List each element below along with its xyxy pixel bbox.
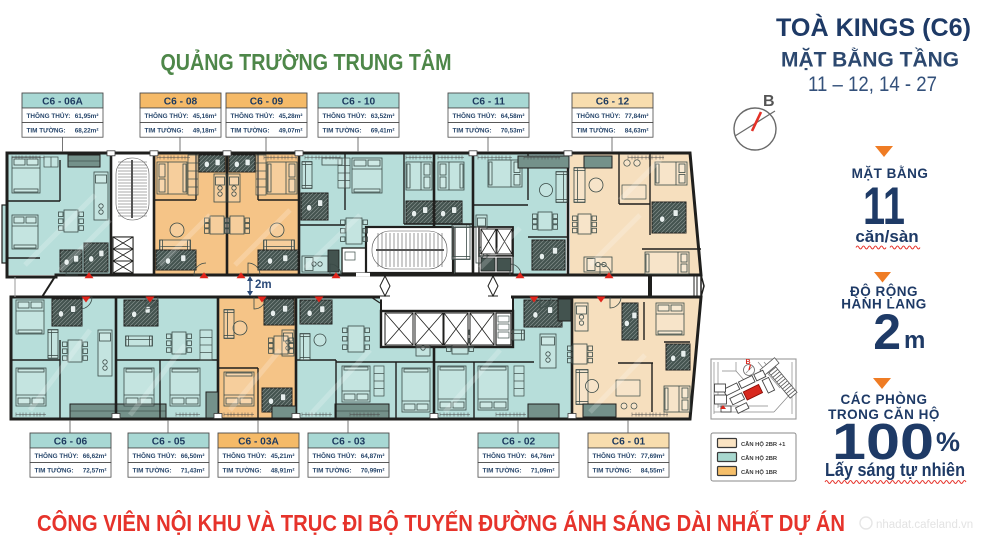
svg-text:m: m [904,327,925,354]
svg-text:THÔNG THỦY:: THÔNG THỦY: [145,111,189,120]
svg-text:C6 - 08: C6 - 08 [164,96,198,107]
svg-text:THÔNG THỦY:: THÔNG THỦY: [133,451,177,460]
svg-text:72,57m²: 72,57m² [83,468,107,475]
svg-text:11 – 12, 14 - 27: 11 – 12, 14 - 27 [808,73,937,96]
svg-text:66,62m²: 66,62m² [83,453,107,460]
svg-text:TIM TƯỜNG:: TIM TƯỜNG: [323,126,362,135]
svg-text:TOÀ KINGS (C6): TOÀ KINGS (C6) [776,13,971,42]
svg-text:64,58m²: 64,58m² [501,113,525,120]
svg-text:THÔNG THỦY:: THÔNG THỦY: [35,451,79,460]
svg-text:TIM TƯỜNG:: TIM TƯỜNG: [231,126,270,135]
svg-text:71,43m²: 71,43m² [181,468,205,475]
svg-text:84,63m²: 84,63m² [625,128,649,135]
svg-text:66,50m²: 66,50m² [181,453,205,460]
svg-text:48,91m²: 48,91m² [271,468,295,475]
svg-text:THÔNG THỦY:: THÔNG THỦY: [27,111,71,120]
svg-text:THÔNG THỦY:: THÔNG THỦY: [577,111,621,120]
svg-text:77,84m²: 77,84m² [625,113,649,120]
svg-text:C6 - 01: C6 - 01 [612,436,646,447]
svg-text:CÁC PHÒNG: CÁC PHÒNG [840,392,927,407]
svg-text:TIM TƯỜNG:: TIM TƯỜNG: [133,466,172,475]
svg-text:C6 - 03A: C6 - 03A [238,436,279,447]
svg-text:C6 - 02: C6 - 02 [502,436,536,447]
svg-text:CĂN HỘ 1BR: CĂN HỘ 1BR [741,468,778,476]
svg-text:C6 - 11: C6 - 11 [472,96,505,107]
svg-text:TIM TƯỜNG:: TIM TƯỜNG: [223,466,262,475]
svg-text:77,69m²: 77,69m² [641,453,665,460]
svg-text:nhadat.cafeland.vn: nhadat.cafeland.vn [876,519,973,531]
svg-text:64,76m²: 64,76m² [531,453,555,460]
svg-text:2m: 2m [255,279,272,291]
svg-text:TIM TƯỜNG:: TIM TƯỜNG: [35,466,74,475]
svg-text:QUẢNG TRƯỜNG TRUNG TÂM: QUẢNG TRƯỜNG TRUNG TÂM [161,47,452,75]
svg-text:45,28m²: 45,28m² [279,113,303,120]
svg-text:69,41m²: 69,41m² [371,128,395,135]
svg-text:64,87m²: 64,87m² [361,453,385,460]
svg-text:TIM TƯỜNG:: TIM TƯỜNG: [577,126,616,135]
svg-text:84,55m²: 84,55m² [641,468,665,475]
svg-text:THÔNG THỦY:: THÔNG THỦY: [593,451,637,460]
svg-text:B: B [763,93,775,110]
svg-text:C6 - 06A: C6 - 06A [42,96,83,107]
svg-text:49,18m²: 49,18m² [193,128,217,135]
svg-text:71,09m²: 71,09m² [531,468,555,475]
svg-text:C6 - 10: C6 - 10 [342,96,376,107]
svg-text:TIM TƯỜNG:: TIM TƯỜNG: [145,126,184,135]
svg-text:63,52m²: 63,52m² [371,113,395,120]
svg-text:%: % [936,427,960,457]
svg-text:45,16m²: 45,16m² [193,113,217,120]
svg-text:CĂN HỘ 2BR +1: CĂN HỘ 2BR +1 [741,440,786,448]
svg-text:49,07m²: 49,07m² [279,128,303,135]
svg-text:THÔNG THỦY:: THÔNG THỦY: [223,451,267,460]
svg-text:TIM TƯỜNG:: TIM TƯỜNG: [313,466,352,475]
svg-text:61,95m²: 61,95m² [75,113,99,120]
svg-text:45,21m²: 45,21m² [271,453,295,460]
svg-text:70,99m²: 70,99m² [361,468,385,475]
svg-text:căn/sàn: căn/sàn [855,227,918,246]
svg-text:THÔNG THỦY:: THÔNG THỦY: [453,111,497,120]
svg-text:TIM TƯỜNG:: TIM TƯỜNG: [27,126,66,135]
svg-text:C6 - 12: C6 - 12 [596,96,630,107]
svg-text:THÔNG THỦY:: THÔNG THỦY: [313,451,357,460]
svg-text:C6 - 05: C6 - 05 [152,436,186,447]
svg-text:CĂN HỘ 2BR: CĂN HỘ 2BR [741,454,778,462]
svg-text:THÔNG THỦY:: THÔNG THỦY: [323,111,367,120]
svg-text:TIM TƯỜNG:: TIM TƯỜNG: [453,126,492,135]
svg-text:C6 - 09: C6 - 09 [250,96,284,107]
svg-text:CÔNG VIÊN NỘI KHU VÀ TRỤC ĐI B: CÔNG VIÊN NỘI KHU VÀ TRỤC ĐI BỘ TUYẾN ĐƯ… [37,509,845,536]
svg-text:MẶT BẰNG TẦNG: MẶT BẰNG TẦNG [781,47,959,72]
svg-text:TIM TƯỜNG:: TIM TƯỜNG: [483,466,522,475]
svg-text:2: 2 [873,304,901,360]
svg-text:THÔNG THỦY:: THÔNG THỦY: [231,111,275,120]
svg-text:C6 - 03: C6 - 03 [332,436,366,447]
svg-text:THÔNG THỦY:: THÔNG THỦY: [483,451,527,460]
svg-text:C6 - 06: C6 - 06 [54,436,88,447]
svg-text:70,53m²: 70,53m² [501,128,525,135]
svg-text:B: B [746,359,751,366]
svg-text:TIM TƯỜNG:: TIM TƯỜNG: [593,466,632,475]
svg-text:Lấy sáng tự nhiên: Lấy sáng tự nhiên [825,459,965,480]
svg-text:68,22m²: 68,22m² [75,128,99,135]
